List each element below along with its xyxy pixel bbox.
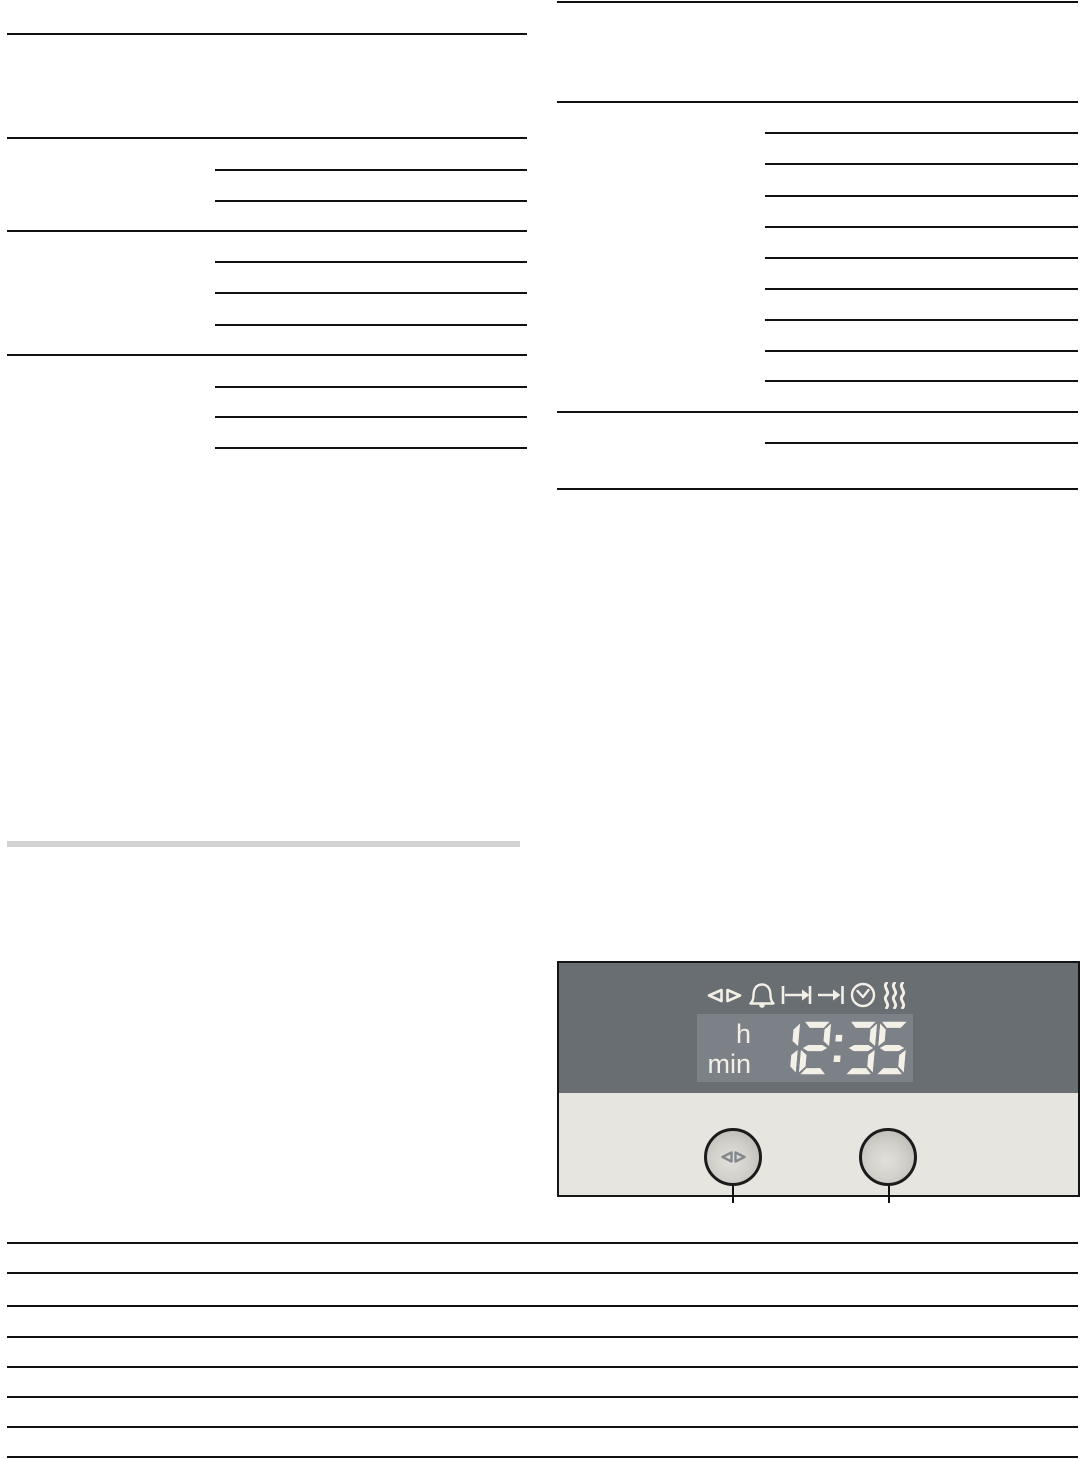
notes-rule: [7, 1242, 1078, 1244]
table-rule: [215, 447, 527, 449]
table-rule: [7, 230, 527, 232]
table-rule: [765, 319, 1078, 321]
display-unit-labels: h min: [707, 1017, 751, 1079]
indicator-icons-row: [706, 980, 908, 1010]
table-rule: [765, 350, 1078, 352]
minute-unit-label: min: [707, 1049, 751, 1079]
panel-display-area: h min: [559, 963, 1078, 1093]
duration-icon: [781, 984, 812, 1006]
table-rule: [215, 200, 527, 202]
notes-rule: [7, 1272, 1078, 1274]
oven-clock-panel-figure: h min: [557, 961, 1080, 1197]
panel-button-area: [559, 1093, 1078, 1195]
seven-segment-digit: [799, 1020, 832, 1076]
select-keys-icon: [706, 987, 743, 1004]
seven-segment-digit: [845, 1020, 878, 1076]
table-rule: [215, 386, 527, 388]
table-rule: [765, 380, 1078, 382]
table-rule: [557, 101, 1078, 103]
table-rule: [215, 324, 527, 326]
notes-rule: [7, 1426, 1078, 1428]
table-rule: [215, 416, 527, 418]
table-rule: [557, 411, 1078, 413]
table-rule: [7, 33, 527, 35]
set-button: [704, 1128, 762, 1186]
table-rule: [215, 261, 527, 263]
notes-rule: [7, 1305, 1078, 1307]
notes-rule: [7, 1456, 1078, 1458]
steam-icon: [882, 982, 908, 1009]
table-rule: [765, 257, 1078, 259]
table-rule: [557, 488, 1078, 490]
seven-segment-time: [768, 1020, 909, 1076]
end-time-icon: [817, 984, 844, 1006]
set-button-icon: [720, 1150, 747, 1164]
notes-rule: [7, 1396, 1078, 1398]
table-rule: [7, 137, 527, 139]
table-rule: [215, 292, 527, 294]
section-divider-bar: [7, 841, 520, 847]
table-rule: [765, 195, 1078, 197]
hour-unit-label: h: [736, 1019, 751, 1049]
seven-segment-digit: [768, 1020, 801, 1076]
clock-display: h min: [697, 1014, 913, 1082]
seven-segment-digit: [876, 1020, 909, 1076]
seven-segment-colon: [830, 1020, 847, 1076]
timer-bell-icon: [748, 981, 776, 1009]
notes-rule: [7, 1366, 1078, 1368]
table-rule: [765, 442, 1078, 444]
clock-icon: [849, 981, 877, 1009]
notes-rule: [7, 1336, 1078, 1338]
manual-page: h min: [0, 0, 1082, 1459]
table-rule: [765, 163, 1078, 165]
table-rule: [557, 1, 1078, 3]
selector-button: [859, 1128, 917, 1186]
table-rule: [765, 132, 1078, 134]
table-rule: [765, 288, 1078, 290]
table-rule: [7, 354, 527, 356]
table-rule: [765, 226, 1078, 228]
table-rule: [215, 169, 527, 171]
